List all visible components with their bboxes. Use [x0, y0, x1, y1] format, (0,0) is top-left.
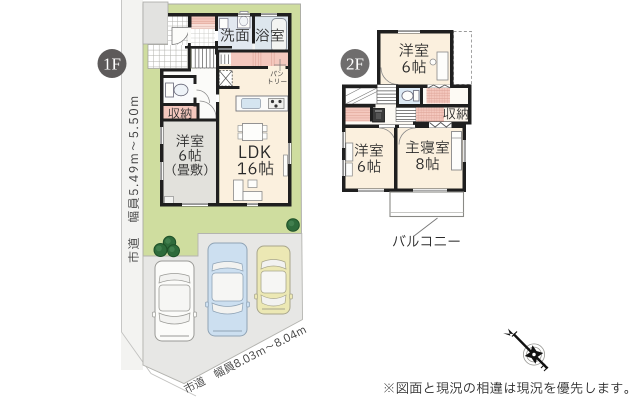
svg-text:1F: 1F [103, 55, 121, 74]
svg-text:2F: 2F [346, 55, 364, 74]
